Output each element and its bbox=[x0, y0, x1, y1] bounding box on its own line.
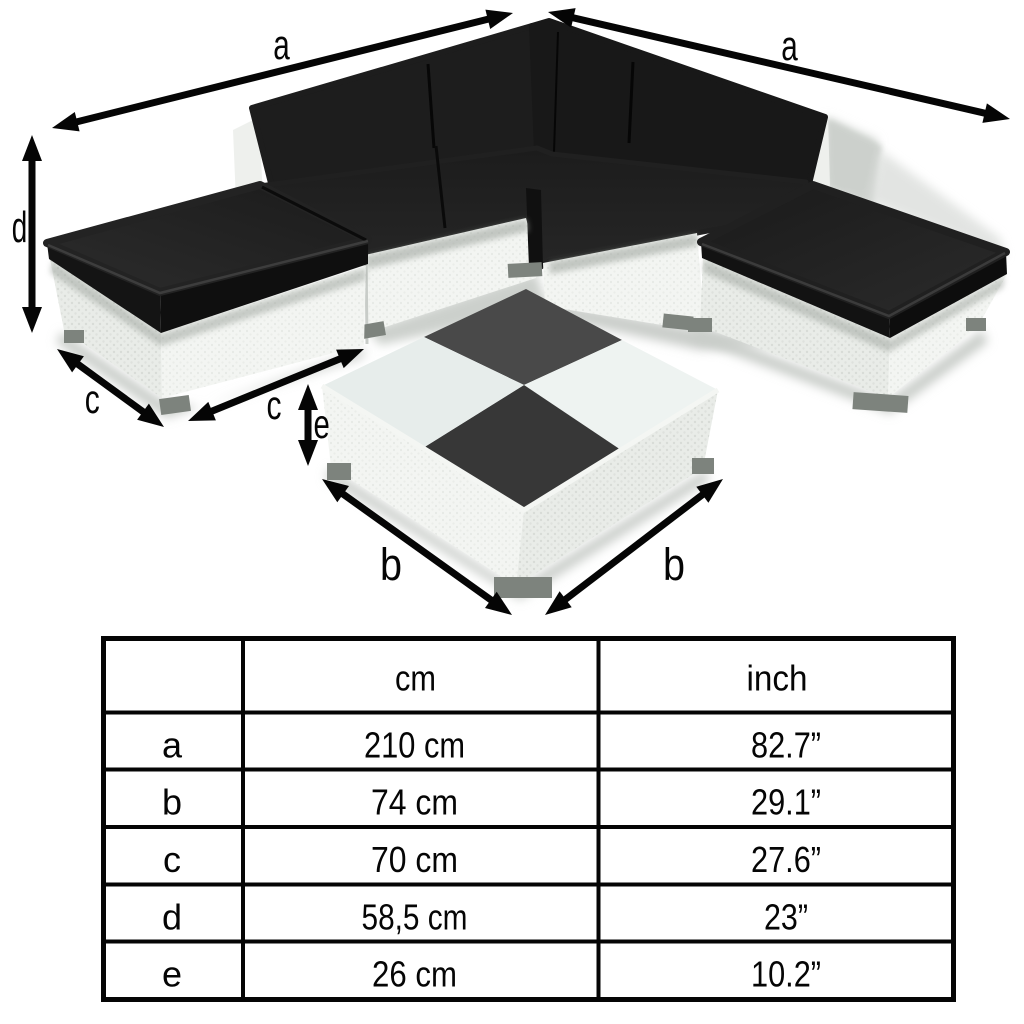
svg-text:27.6”: 27.6” bbox=[751, 839, 821, 880]
svg-text:58,5 cm: 58,5 cm bbox=[362, 897, 468, 938]
svg-text:e: e bbox=[162, 954, 182, 995]
svg-text:b: b bbox=[380, 539, 402, 590]
svg-text:d: d bbox=[162, 897, 182, 938]
svg-text:29.1”: 29.1” bbox=[751, 782, 821, 823]
svg-text:70 cm: 70 cm bbox=[371, 839, 458, 880]
svg-text:c: c bbox=[85, 376, 100, 422]
svg-text:210 cm: 210 cm bbox=[364, 725, 465, 766]
svg-text:c: c bbox=[163, 839, 181, 880]
svg-text:b: b bbox=[663, 539, 685, 590]
svg-text:b: b bbox=[162, 782, 182, 823]
svg-text:10.2”: 10.2” bbox=[751, 954, 821, 995]
svg-text:inch: inch bbox=[747, 658, 808, 699]
svg-text:e: e bbox=[314, 401, 330, 447]
svg-text:26 cm: 26 cm bbox=[372, 954, 457, 995]
svg-text:a: a bbox=[162, 725, 183, 766]
svg-text:cm: cm bbox=[395, 658, 436, 699]
svg-text:d: d bbox=[12, 203, 28, 252]
svg-text:74 cm: 74 cm bbox=[371, 782, 458, 823]
svg-text:a: a bbox=[273, 21, 290, 68]
svg-text:c: c bbox=[267, 382, 282, 428]
svg-text:a: a bbox=[781, 22, 798, 69]
svg-text:23”: 23” bbox=[764, 897, 808, 938]
svg-text:82.7”: 82.7” bbox=[751, 725, 821, 766]
